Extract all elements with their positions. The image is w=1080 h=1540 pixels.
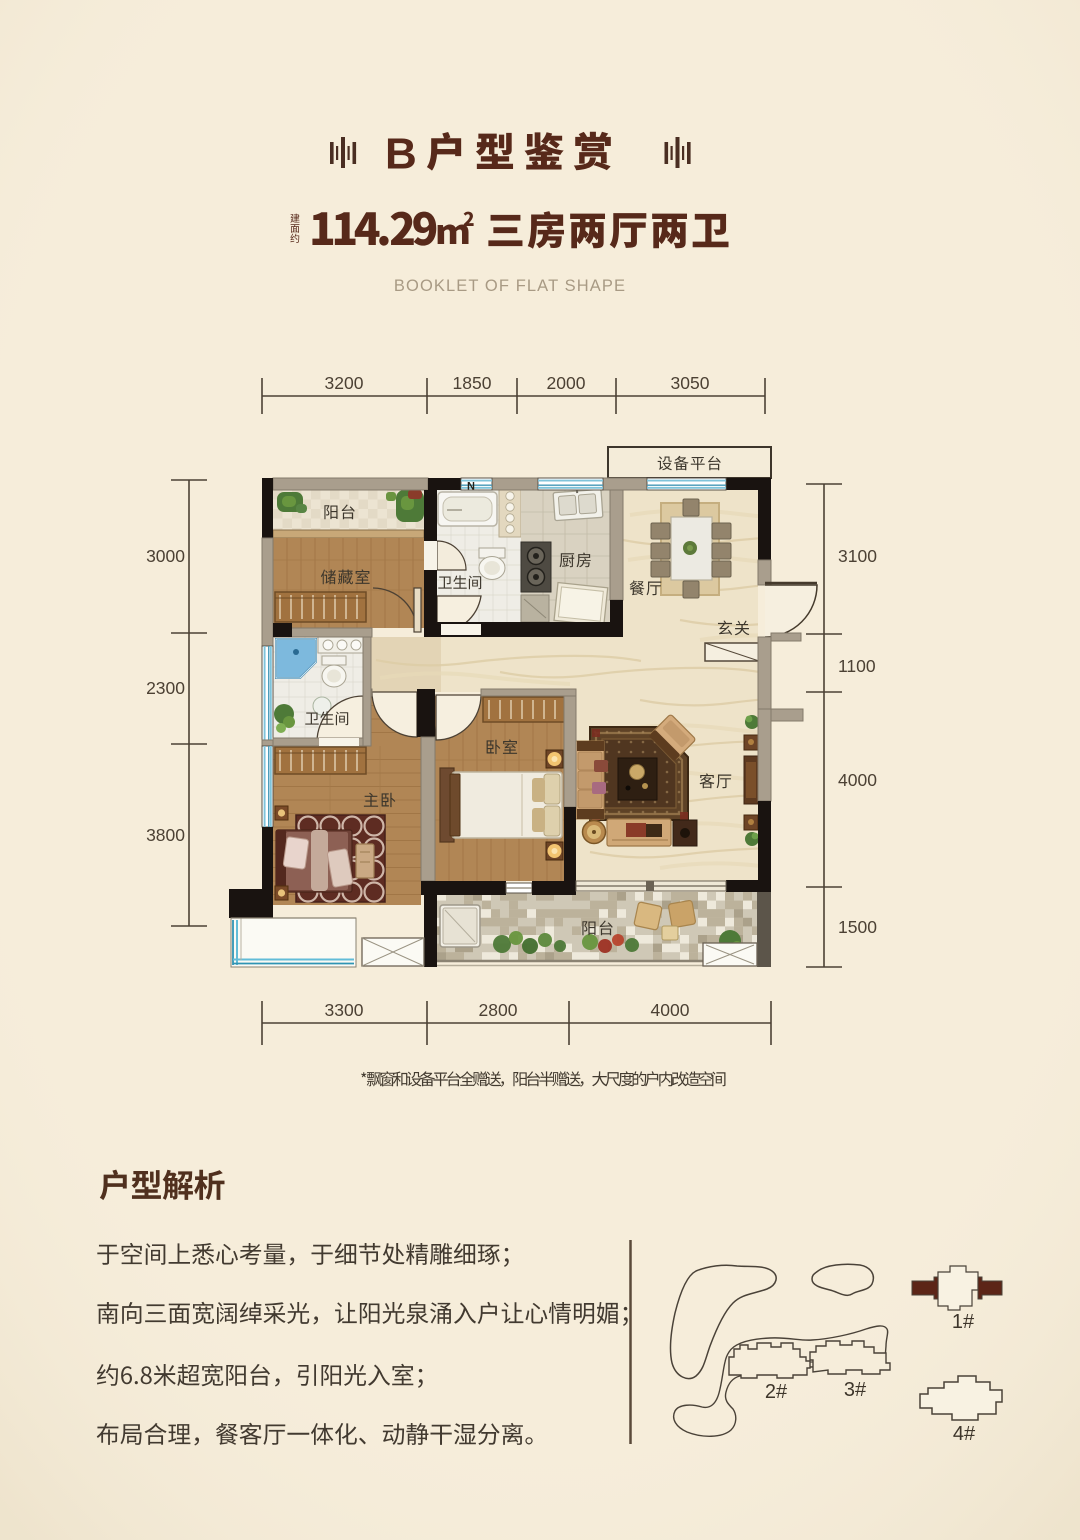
svg-text:1100: 1100 — [838, 656, 876, 676]
svg-text:B: B — [385, 130, 417, 179]
svg-text:1#: 1# — [952, 1311, 975, 1333]
svg-text:2#: 2# — [765, 1381, 788, 1403]
svg-text:2000: 2000 — [547, 373, 586, 393]
svg-text:1500: 1500 — [838, 917, 877, 937]
svg-text:3200: 3200 — [325, 373, 364, 393]
svg-text:4000: 4000 — [838, 770, 877, 790]
svg-text:1850: 1850 — [453, 373, 492, 393]
svg-text:3#: 3# — [844, 1379, 867, 1401]
svg-text:3000: 3000 — [146, 546, 185, 566]
svg-text:BOOKLET OF FLAT SHAPE: BOOKLET OF FLAT SHAPE — [394, 277, 626, 295]
svg-text:N: N — [467, 481, 475, 493]
svg-text:3300: 3300 — [325, 1000, 364, 1020]
svg-text:4000: 4000 — [651, 1000, 690, 1020]
svg-text:3050: 3050 — [671, 373, 710, 393]
svg-text:3800: 3800 — [146, 825, 185, 845]
svg-text:2300: 2300 — [146, 678, 185, 698]
svg-text:3100: 3100 — [838, 546, 877, 566]
svg-text:2800: 2800 — [479, 1000, 518, 1020]
svg-text:4#: 4# — [953, 1423, 976, 1445]
